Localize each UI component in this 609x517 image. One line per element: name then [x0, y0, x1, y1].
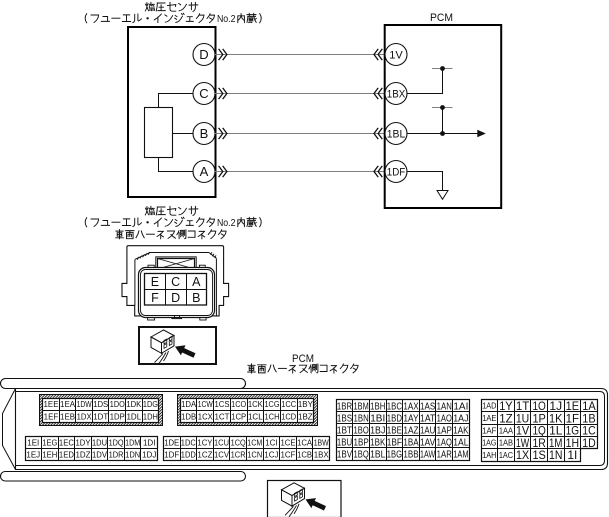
svg-text:1AU: 1AU	[420, 425, 435, 436]
svg-text:1EA: 1EA	[60, 400, 76, 409]
svg-text:1CV: 1CV	[214, 450, 230, 459]
svg-text:1CK: 1CK	[248, 400, 264, 409]
svg-text:1BS: 1BS	[337, 413, 352, 424]
svg-text:1BN: 1BN	[354, 413, 369, 424]
svg-text:1DQ: 1DQ	[109, 439, 124, 448]
svg-text:F: F	[151, 291, 159, 305]
svg-text:C: C	[199, 86, 208, 101]
svg-text:1AY: 1AY	[403, 413, 418, 424]
svg-text:PCM: PCM	[430, 12, 453, 24]
svg-text:1BX: 1BX	[314, 450, 330, 459]
svg-text:1AS: 1AS	[420, 401, 435, 412]
svg-text:1EB: 1EB	[60, 412, 75, 421]
svg-text:1CC: 1CC	[281, 400, 296, 409]
svg-text:1N: 1N	[549, 448, 562, 462]
svg-text:A: A	[192, 275, 201, 289]
svg-text:1BD: 1BD	[387, 413, 402, 424]
svg-text:D: D	[199, 47, 208, 62]
svg-text:1AQ: 1AQ	[437, 438, 452, 449]
svg-text:1BB: 1BB	[403, 450, 418, 461]
svg-text:1DO: 1DO	[110, 400, 125, 409]
svg-text:1BH: 1BH	[370, 401, 385, 412]
svg-text:1AL: 1AL	[453, 438, 469, 449]
svg-text:1AV: 1AV	[420, 438, 435, 449]
svg-text:1EE: 1EE	[43, 400, 58, 409]
svg-text:1S: 1S	[532, 448, 545, 462]
svg-text:1D: 1D	[582, 436, 596, 450]
svg-text:E: E	[151, 275, 159, 289]
svg-text:1DF: 1DF	[164, 450, 179, 459]
svg-text:1EI: 1EI	[27, 439, 39, 448]
svg-text:1CG: 1CG	[265, 400, 280, 409]
svg-text:1CX: 1CX	[198, 412, 214, 421]
svg-text:1DE: 1DE	[164, 439, 179, 448]
svg-text:1AW: 1AW	[420, 450, 436, 461]
svg-text:1DT: 1DT	[93, 412, 108, 421]
svg-text:1DA: 1DA	[181, 400, 197, 409]
svg-text:1DP: 1DP	[110, 412, 125, 421]
svg-text:B: B	[200, 126, 209, 141]
svg-text:1CM: 1CM	[247, 439, 262, 448]
svg-text:1CP: 1CP	[231, 412, 246, 421]
svg-text:1ED: 1ED	[59, 450, 74, 459]
svg-text:1DC: 1DC	[181, 439, 196, 448]
svg-text:1AI: 1AI	[453, 401, 468, 412]
svg-text:1CT: 1CT	[214, 412, 229, 421]
svg-text:A: A	[200, 164, 209, 179]
svg-text:1BT: 1BT	[337, 425, 352, 436]
svg-text:1DW: 1DW	[77, 400, 92, 409]
svg-text:1DU: 1DU	[92, 439, 107, 448]
svg-text:1BJ: 1BJ	[370, 425, 385, 436]
svg-text:1CF: 1CF	[280, 450, 295, 459]
svg-text:1DL: 1DL	[126, 412, 141, 421]
svg-text:D: D	[171, 291, 180, 305]
svg-text:1CU: 1CU	[214, 439, 229, 448]
svg-text:1CL: 1CL	[248, 412, 263, 421]
svg-text:1DY: 1DY	[75, 439, 91, 448]
svg-text:1BL: 1BL	[370, 450, 386, 461]
svg-text:1Z: 1Z	[499, 411, 512, 425]
svg-text:No.2: No.2	[217, 14, 236, 25]
svg-text:1BF: 1BF	[387, 438, 402, 449]
svg-text:1BE: 1BE	[387, 425, 402, 436]
svg-text:1CJ: 1CJ	[264, 450, 278, 459]
svg-text:1DR: 1DR	[109, 450, 124, 459]
svg-text:C: C	[171, 275, 180, 289]
svg-text:1AE: 1AE	[482, 413, 496, 423]
svg-text:1CQ: 1CQ	[231, 439, 246, 448]
svg-text:1DV: 1DV	[92, 450, 108, 459]
svg-text:1AR: 1AR	[437, 450, 452, 461]
svg-text:1DJ: 1DJ	[142, 450, 156, 459]
svg-text:1CY: 1CY	[197, 439, 213, 448]
svg-text:1BQ: 1BQ	[354, 450, 369, 461]
svg-text:1EC: 1EC	[59, 439, 74, 448]
svg-text:1BP: 1BP	[354, 438, 369, 449]
svg-text:1CI: 1CI	[265, 439, 277, 448]
svg-text:1AZ: 1AZ	[403, 425, 418, 436]
svg-text:1CH: 1CH	[265, 412, 280, 421]
svg-text:1CN: 1CN	[247, 450, 262, 459]
svg-text:1AJ: 1AJ	[453, 413, 468, 424]
svg-text:B: B	[192, 291, 200, 305]
svg-text:1AA: 1AA	[499, 425, 513, 435]
svg-text:1BU: 1BU	[337, 438, 352, 449]
svg-text:1DM: 1DM	[125, 439, 140, 448]
svg-text:1AG: 1AG	[482, 438, 496, 448]
svg-text:1BO: 1BO	[354, 425, 369, 436]
svg-text:1AD: 1AD	[482, 401, 496, 411]
svg-text:1DN: 1DN	[125, 450, 140, 459]
svg-text:1BL: 1BL	[387, 129, 406, 141]
svg-text:1BA: 1BA	[403, 438, 418, 449]
svg-text:1CA: 1CA	[297, 439, 313, 448]
svg-text:1DZ: 1DZ	[75, 450, 90, 459]
svg-text:1AF: 1AF	[482, 425, 496, 435]
svg-text:1AO: 1AO	[437, 413, 452, 424]
svg-text:PCM: PCM	[292, 353, 314, 365]
svg-text:1CB: 1CB	[297, 450, 312, 459]
svg-text:1CR: 1CR	[231, 450, 246, 459]
svg-text:1BC: 1BC	[387, 401, 402, 412]
svg-text:1X: 1X	[516, 448, 529, 462]
svg-text:1EG: 1EG	[42, 439, 57, 448]
svg-text:1BV: 1BV	[337, 450, 352, 461]
svg-text:1BK: 1BK	[370, 438, 385, 449]
svg-text:1DX: 1DX	[77, 412, 93, 421]
svg-text:1AN: 1AN	[437, 401, 452, 412]
svg-text:1CD: 1CD	[281, 412, 296, 421]
svg-text:No.2: No.2	[217, 218, 236, 229]
svg-text:1EH: 1EH	[42, 450, 57, 459]
svg-text:1AM: 1AM	[453, 450, 468, 461]
svg-text:1DS: 1DS	[93, 400, 108, 409]
svg-text:1DD: 1DD	[181, 450, 196, 459]
svg-text:1AP: 1AP	[437, 425, 452, 436]
svg-text:1BW: 1BW	[314, 439, 329, 448]
svg-text:1DK: 1DK	[126, 400, 142, 409]
svg-text:1BM: 1BM	[354, 401, 369, 412]
svg-text:1AX: 1AX	[403, 401, 418, 412]
svg-text:1CS: 1CS	[214, 400, 229, 409]
svg-text:1CE: 1CE	[280, 439, 295, 448]
svg-text:1DB: 1DB	[181, 412, 196, 421]
svg-text:1BR: 1BR	[337, 401, 352, 412]
svg-text:1BI: 1BI	[370, 413, 385, 424]
svg-text:1AB: 1AB	[499, 438, 513, 448]
svg-text:1EJ: 1EJ	[26, 450, 40, 459]
svg-text:1AK: 1AK	[453, 425, 468, 436]
svg-text:1DG: 1DG	[143, 400, 158, 409]
svg-text:1BX: 1BX	[387, 89, 406, 101]
svg-text:1AH: 1AH	[482, 450, 496, 460]
svg-text:1BY: 1BY	[298, 400, 314, 409]
svg-text:1CO: 1CO	[231, 400, 246, 409]
svg-text:1V: 1V	[389, 50, 403, 62]
svg-text:1AT: 1AT	[420, 413, 435, 424]
svg-text:1I: 1I	[567, 448, 577, 462]
svg-text:1BZ: 1BZ	[298, 412, 313, 421]
svg-text:1DI: 1DI	[143, 439, 155, 448]
svg-text:1AC: 1AC	[499, 450, 513, 460]
svg-text:1BG: 1BG	[387, 450, 402, 461]
svg-text:1CZ: 1CZ	[197, 450, 212, 459]
svg-text:1DF: 1DF	[387, 167, 406, 179]
svg-text:1CW: 1CW	[198, 400, 213, 409]
svg-text:1EF: 1EF	[44, 412, 59, 421]
svg-text:1DH: 1DH	[143, 412, 158, 421]
